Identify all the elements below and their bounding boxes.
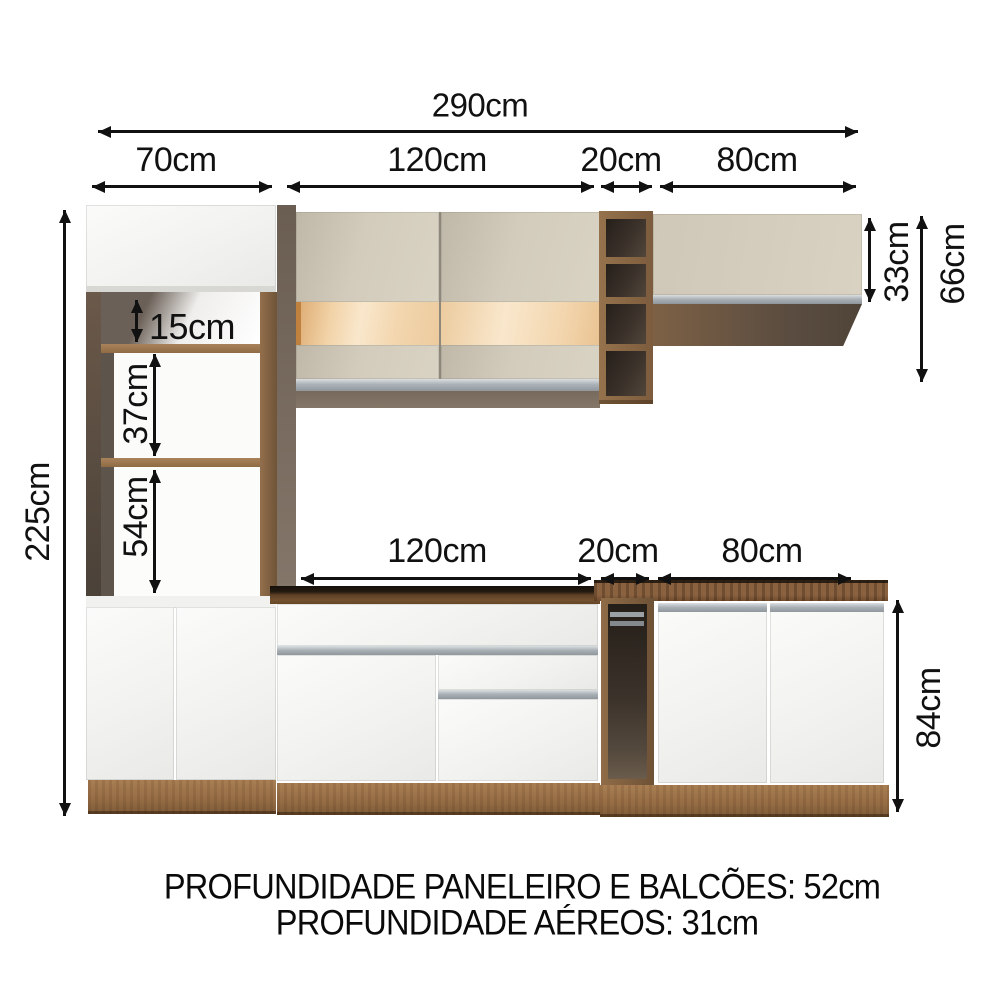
tall-cabinet-base-door-right [176, 607, 276, 780]
base-right-door-left [658, 603, 767, 783]
dim-arrow-upper-right-width [660, 185, 856, 188]
upper-shelf-compartment-3 [606, 304, 646, 344]
dim-label-niche-54: 54cm [119, 476, 153, 557]
upper-mid-glass-left [296, 302, 439, 345]
upper-shelf-compartment-4 [606, 351, 646, 396]
base-niche-interior [608, 604, 647, 779]
base-mid-drawer-2-handle [438, 690, 598, 699]
dim-label-upper-mid-width: 120cm [387, 143, 487, 177]
base-mid-top-drawer-handle [277, 646, 598, 655]
footer-depth-tall-and-base: PROFUNDIDADE PANELEIRO E BALCÕES: 52cm [164, 870, 880, 905]
dim-label-total-height: 225cm [21, 462, 55, 562]
upper-mid-door-right-top [441, 212, 600, 302]
support-column [277, 205, 296, 592]
dim-arrow-base-niche-width [601, 577, 649, 580]
base-mid-drawer-3 [438, 699, 598, 781]
dim-label-upper-niche-width: 20cm [580, 143, 661, 177]
dim-label-upper-right-width: 80cm [716, 143, 797, 177]
upper-right-bottom-rail [653, 295, 862, 304]
base-right-plinth [600, 785, 889, 817]
upper-mid-glass-right [441, 302, 600, 345]
upper-mid-door-divider [439, 212, 441, 391]
tall-cabinet-shelf-2 [99, 458, 261, 467]
dim-label-niche-15: 15cm [149, 309, 235, 345]
upper-right-door [653, 214, 862, 295]
dim-label-base-right-width: 80cm [721, 534, 802, 568]
countertop-mid [270, 586, 600, 604]
tall-cabinet-plinth [88, 780, 276, 814]
upper-mid-door-right-bottom [441, 345, 600, 379]
upper-mid-door-left-top [296, 212, 439, 302]
dim-label-tall-width: 70cm [135, 143, 216, 177]
dim-label-base-height: 84cm [912, 667, 946, 748]
dim-arrow-tall-width [92, 185, 272, 188]
base-niche-slide-rail-2 [610, 621, 644, 626]
upper-mid-bottom-rail [296, 379, 600, 391]
dim-arrow-base-height [896, 600, 899, 812]
base-mid-door [277, 655, 436, 781]
tall-cabinet-top-door [86, 205, 276, 288]
tall-cabinet-left-rail [86, 292, 101, 600]
dim-arrow-base-right-width [658, 577, 851, 580]
base-right-door-left-handle [658, 603, 767, 612]
footer-depth-wall: PROFUNDIDADE AÉREOS: 31cm [276, 906, 758, 941]
dim-label-upper-right-height: 33cm [880, 221, 914, 302]
dim-arrow-total-height [63, 210, 66, 816]
tall-cabinet-base-door-left [86, 607, 174, 780]
upper-mid-door-left-bottom [296, 345, 439, 379]
base-mid-top-drawer [277, 604, 598, 646]
base-mid-drawer-2 [438, 655, 598, 690]
upper-mid-underside [296, 391, 600, 408]
dim-label-base-mid-width: 120cm [387, 534, 487, 568]
dim-arrow-total-width [98, 130, 858, 133]
dim-arrow-base-mid-width [301, 577, 591, 580]
upper-shelf-compartment-2 [606, 264, 646, 297]
upper-mid-glass-wood-edge [296, 302, 301, 345]
dim-label-base-niche-width: 20cm [577, 534, 658, 568]
tall-cabinet-right-rail [260, 292, 277, 600]
base-mid-plinth [277, 783, 600, 815]
upper-right-underside [653, 304, 862, 346]
base-right-door-right [770, 603, 884, 783]
dim-label-niche-37: 37cm [119, 363, 153, 444]
dim-label-upper-total-height: 66cm [936, 223, 970, 304]
base-niche-slide-rail-1 [610, 612, 644, 617]
dim-arrow-upper-mid-width [287, 185, 594, 188]
dim-arrow-niche-15 [135, 300, 138, 342]
dim-arrow-upper-total-height [920, 216, 923, 382]
dim-arrow-upper-right-height [868, 218, 871, 302]
upper-shelf-compartment-1 [606, 219, 646, 257]
base-right-door-right-handle [770, 603, 884, 612]
dim-arrow-upper-niche-width [601, 185, 652, 188]
dim-label-total-width: 290cm [432, 89, 529, 122]
kitchen-dimension-diagram: 290cm 70cm 120cm 20cm 80cm 225cm 15cm 37… [0, 0, 1000, 1000]
